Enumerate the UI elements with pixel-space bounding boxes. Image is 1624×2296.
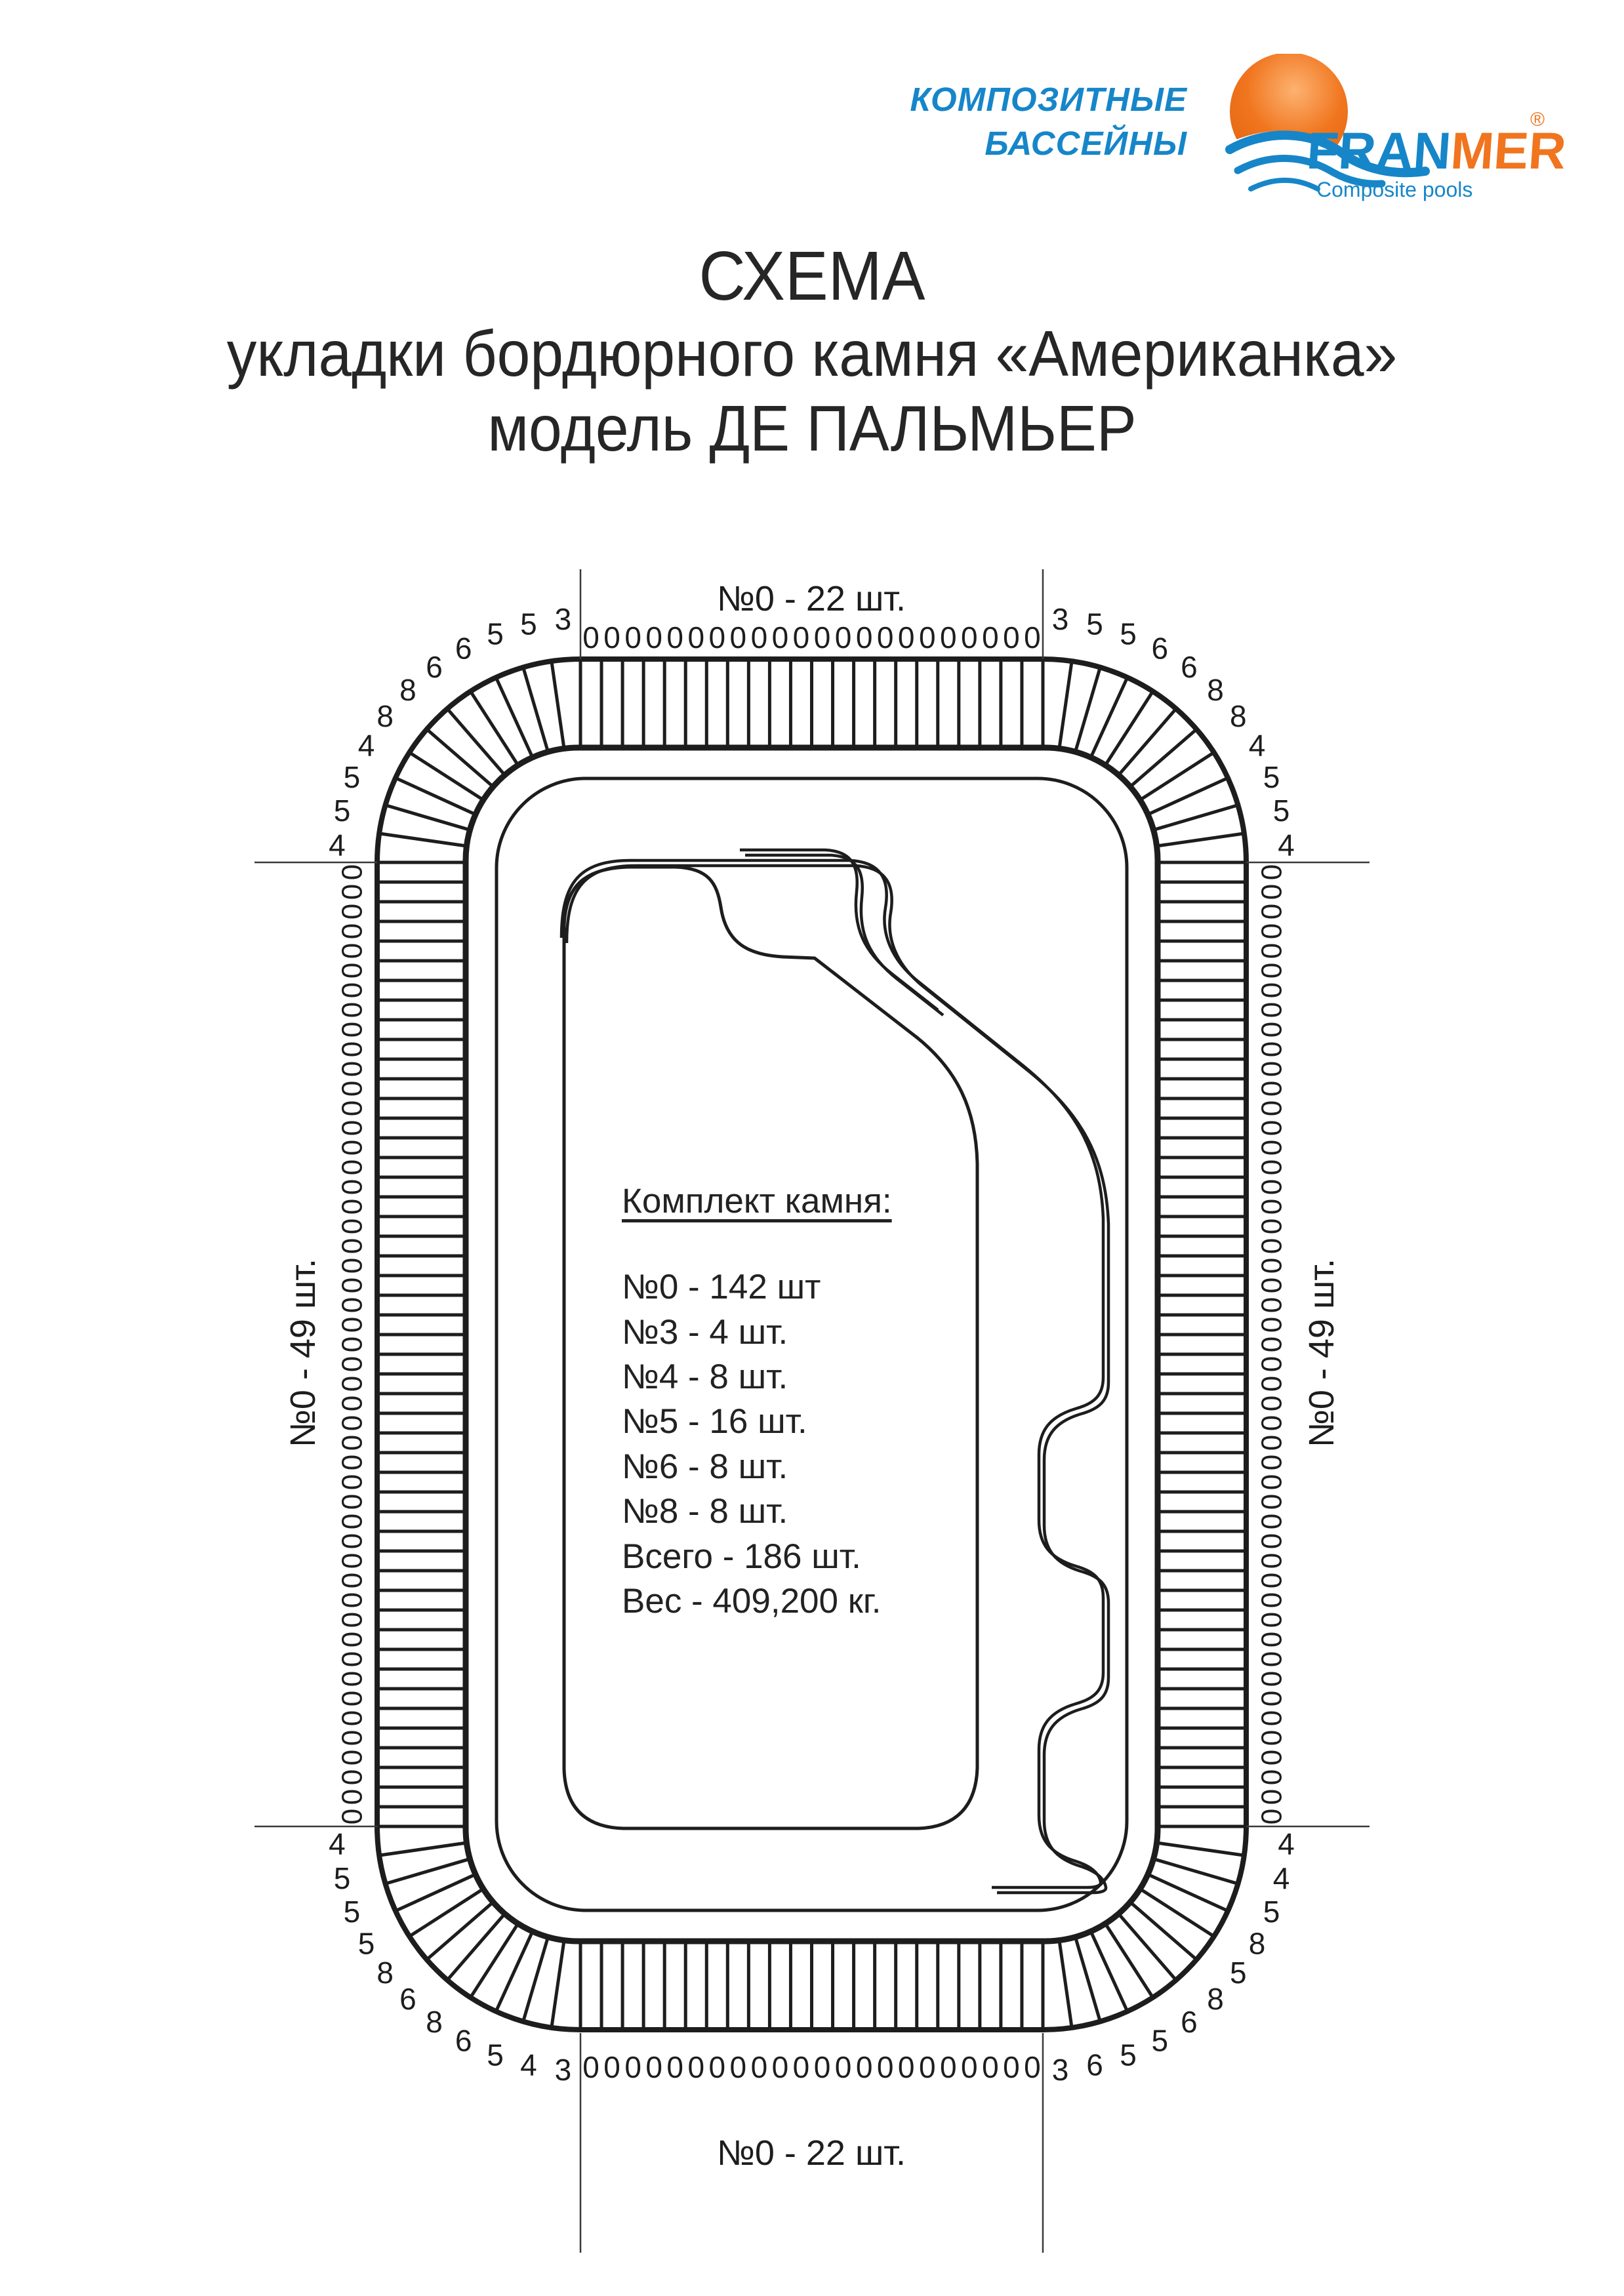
svg-text:0: 0 — [1256, 1002, 1288, 1018]
svg-text:0: 0 — [1256, 1238, 1288, 1254]
svg-text:0: 0 — [336, 1710, 369, 1726]
svg-text:0: 0 — [336, 1553, 369, 1569]
svg-text:8: 8 — [1207, 1982, 1224, 2016]
svg-text:0: 0 — [624, 2050, 641, 2084]
svg-text:8: 8 — [376, 699, 394, 733]
legend-item: №8 - 8 шт. — [622, 1492, 892, 1531]
svg-text:0: 0 — [1256, 1218, 1288, 1234]
svg-text:0: 0 — [1256, 884, 1288, 900]
svg-text:0: 0 — [336, 1218, 369, 1234]
svg-text:0: 0 — [336, 1769, 369, 1785]
svg-text:5: 5 — [1273, 794, 1290, 828]
svg-text:0: 0 — [336, 1730, 369, 1746]
svg-text:0: 0 — [1003, 620, 1020, 655]
svg-text:0: 0 — [336, 1376, 369, 1392]
pool-layout-diagram: 0000000000000000000000000000000000000000… — [0, 0, 1624, 2296]
svg-text:0: 0 — [336, 1159, 369, 1175]
svg-text:0: 0 — [1256, 1455, 1288, 1470]
svg-text:0: 0 — [336, 1592, 369, 1608]
svg-text:0: 0 — [1256, 1140, 1288, 1156]
svg-text:0: 0 — [730, 2050, 747, 2084]
legend-item: №4 - 8 шт. — [622, 1358, 892, 1396]
svg-text:0: 0 — [336, 1061, 369, 1077]
svg-text:0: 0 — [1256, 1061, 1288, 1077]
svg-text:0: 0 — [645, 620, 662, 655]
svg-text:0: 0 — [336, 1632, 369, 1647]
svg-text:0: 0 — [772, 2050, 789, 2084]
svg-text:0: 0 — [1256, 1179, 1288, 1195]
svg-text:0: 0 — [1256, 1376, 1288, 1392]
svg-text:0: 0 — [666, 620, 683, 655]
svg-text:0: 0 — [898, 620, 915, 655]
svg-text:0: 0 — [687, 2050, 704, 2084]
svg-text:0: 0 — [336, 1494, 369, 1510]
svg-text:5: 5 — [1230, 1956, 1247, 1990]
svg-text:0: 0 — [1256, 943, 1288, 959]
svg-text:5: 5 — [520, 607, 537, 641]
svg-text:0: 0 — [336, 1258, 369, 1274]
svg-text:0: 0 — [336, 1514, 369, 1529]
svg-text:0: 0 — [1256, 1730, 1288, 1746]
right-count-label: №0 - 49 шт. — [1301, 1209, 1342, 1497]
svg-text:0: 0 — [1256, 1337, 1288, 1352]
svg-text:0: 0 — [687, 620, 704, 655]
svg-text:0: 0 — [603, 2050, 620, 2084]
svg-text:0: 0 — [1256, 1100, 1288, 1116]
svg-text:3: 3 — [1052, 602, 1069, 636]
svg-text:0: 0 — [1256, 1317, 1288, 1333]
svg-text:0: 0 — [336, 963, 369, 978]
svg-text:8: 8 — [1207, 673, 1224, 707]
legend-item: №3 - 4 шт. — [622, 1313, 892, 1352]
svg-text:0: 0 — [708, 2050, 725, 2084]
svg-text:0: 0 — [961, 2050, 978, 2084]
svg-text:0: 0 — [1003, 2050, 1020, 2084]
svg-text:0: 0 — [336, 1041, 369, 1057]
svg-text:0: 0 — [336, 1455, 369, 1470]
svg-text:5: 5 — [344, 1895, 361, 1929]
svg-text:0: 0 — [1256, 1553, 1288, 1569]
top-count-label: №0 - 22 шт. — [647, 578, 975, 619]
svg-text:0: 0 — [666, 2050, 683, 2084]
svg-text:0: 0 — [582, 620, 599, 655]
svg-text:0: 0 — [336, 1691, 369, 1706]
svg-text:0: 0 — [1256, 963, 1288, 978]
svg-text:0: 0 — [1256, 1710, 1288, 1726]
svg-text:0: 0 — [1256, 904, 1288, 919]
svg-text:0: 0 — [336, 1809, 369, 1824]
svg-text:4: 4 — [1278, 1827, 1295, 1861]
svg-text:0: 0 — [835, 2050, 852, 2084]
svg-text:0: 0 — [603, 620, 620, 655]
svg-text:0: 0 — [582, 2050, 599, 2084]
legend-item: №6 - 8 шт. — [622, 1447, 892, 1486]
svg-text:0: 0 — [336, 1081, 369, 1097]
left-count-label: №0 - 49 шт. — [283, 1209, 323, 1497]
svg-text:5: 5 — [1086, 607, 1103, 641]
svg-text:6: 6 — [455, 632, 472, 666]
svg-text:0: 0 — [1256, 1671, 1288, 1687]
svg-text:0: 0 — [1256, 982, 1288, 998]
svg-text:0: 0 — [336, 1337, 369, 1352]
svg-text:5: 5 — [1151, 2023, 1168, 2057]
svg-text:0: 0 — [856, 620, 873, 655]
svg-text:0: 0 — [1256, 1769, 1288, 1785]
svg-text:0: 0 — [793, 620, 810, 655]
svg-text:0: 0 — [336, 982, 369, 998]
svg-text:0: 0 — [814, 620, 831, 655]
svg-text:0: 0 — [877, 2050, 894, 2084]
svg-text:0: 0 — [336, 1238, 369, 1254]
svg-text:0: 0 — [1256, 1691, 1288, 1706]
svg-text:0: 0 — [1256, 864, 1288, 880]
svg-text:0: 0 — [1256, 1435, 1288, 1451]
pool-step-tongue — [740, 850, 943, 1015]
svg-text:5: 5 — [334, 794, 351, 828]
svg-text:0: 0 — [1256, 1297, 1288, 1313]
svg-text:8: 8 — [399, 673, 416, 707]
svg-text:0: 0 — [336, 1356, 369, 1372]
svg-text:3: 3 — [555, 2053, 572, 2087]
svg-text:5: 5 — [334, 1861, 351, 1895]
svg-text:0: 0 — [336, 1651, 369, 1667]
svg-text:0: 0 — [982, 2050, 999, 2084]
svg-text:0: 0 — [1024, 620, 1041, 655]
svg-text:0: 0 — [1256, 1789, 1288, 1805]
svg-text:0: 0 — [336, 1022, 369, 1037]
svg-text:0: 0 — [1256, 1494, 1288, 1510]
svg-text:0: 0 — [1256, 1120, 1288, 1136]
svg-text:0: 0 — [336, 904, 369, 919]
svg-text:0: 0 — [751, 2050, 768, 2084]
svg-text:8: 8 — [1249, 1926, 1266, 1960]
svg-text:0: 0 — [940, 620, 957, 655]
svg-text:0: 0 — [336, 884, 369, 900]
svg-text:0: 0 — [336, 1533, 369, 1549]
svg-text:5: 5 — [487, 616, 504, 651]
svg-text:4: 4 — [329, 828, 346, 862]
svg-text:6: 6 — [399, 1982, 416, 2016]
schema-page: КОМПОЗИТНЫЕ БАССЕЙНЫ FRANMER ® Composite… — [0, 0, 1624, 2296]
svg-text:0: 0 — [1256, 923, 1288, 939]
svg-text:0: 0 — [814, 2050, 831, 2084]
svg-text:0: 0 — [336, 1573, 369, 1588]
svg-text:0: 0 — [1256, 1632, 1288, 1647]
svg-text:0: 0 — [336, 1120, 369, 1136]
svg-text:6: 6 — [1086, 2047, 1103, 2082]
svg-text:0: 0 — [336, 1140, 369, 1156]
svg-text:4: 4 — [329, 1827, 346, 1861]
svg-text:5: 5 — [1263, 760, 1280, 794]
svg-text:0: 0 — [336, 1435, 369, 1451]
svg-text:0: 0 — [1256, 1159, 1288, 1175]
svg-text:6: 6 — [1181, 2005, 1198, 2039]
svg-text:0: 0 — [1256, 1474, 1288, 1490]
svg-text:8: 8 — [426, 2005, 443, 2039]
legend-heading: Комплект камня: — [622, 1182, 892, 1220]
svg-text:8: 8 — [1230, 699, 1247, 733]
svg-text:5: 5 — [1263, 1895, 1280, 1929]
svg-text:0: 0 — [336, 1100, 369, 1116]
svg-text:0: 0 — [919, 2050, 936, 2084]
svg-text:0: 0 — [336, 1297, 369, 1313]
svg-text:0: 0 — [1256, 1081, 1288, 1097]
svg-text:5: 5 — [358, 1926, 375, 1960]
svg-text:0: 0 — [336, 923, 369, 939]
svg-text:0: 0 — [1256, 1041, 1288, 1057]
svg-text:0: 0 — [919, 620, 936, 655]
legend-item: №0 - 142 шт — [622, 1268, 892, 1306]
svg-text:0: 0 — [877, 620, 894, 655]
svg-text:0: 0 — [1256, 1573, 1288, 1588]
svg-text:6: 6 — [1151, 632, 1168, 666]
svg-text:0: 0 — [1256, 1612, 1288, 1628]
legend-item: Всего - 186 шт. — [622, 1537, 892, 1576]
svg-text:0: 0 — [793, 2050, 810, 2084]
svg-text:0: 0 — [336, 1671, 369, 1687]
svg-text:0: 0 — [645, 2050, 662, 2084]
svg-text:0: 0 — [1256, 1651, 1288, 1667]
svg-text:0: 0 — [336, 1750, 369, 1765]
svg-text:0: 0 — [835, 620, 852, 655]
svg-text:0: 0 — [336, 1317, 369, 1333]
svg-text:5: 5 — [487, 2038, 504, 2072]
svg-text:5: 5 — [1120, 2038, 1137, 2072]
svg-text:6: 6 — [455, 2023, 472, 2057]
svg-text:0: 0 — [336, 1199, 369, 1215]
svg-text:4: 4 — [358, 729, 375, 763]
svg-text:6: 6 — [1181, 650, 1198, 684]
svg-text:5: 5 — [344, 760, 361, 794]
bottom-count-label: №0 - 22 шт. — [647, 2133, 975, 2173]
svg-text:6: 6 — [426, 650, 443, 684]
svg-text:8: 8 — [376, 1956, 394, 1990]
svg-text:0: 0 — [1024, 2050, 1041, 2084]
svg-text:0: 0 — [624, 620, 641, 655]
svg-text:0: 0 — [336, 1789, 369, 1805]
svg-text:0: 0 — [1256, 1415, 1288, 1431]
svg-text:0: 0 — [336, 1179, 369, 1195]
svg-text:0: 0 — [1256, 1356, 1288, 1372]
svg-text:0: 0 — [1256, 1514, 1288, 1529]
svg-text:0: 0 — [1256, 1396, 1288, 1411]
svg-text:0: 0 — [982, 620, 999, 655]
svg-text:0: 0 — [961, 620, 978, 655]
svg-text:0: 0 — [336, 1612, 369, 1628]
legend-item: №5 - 16 шт. — [622, 1402, 892, 1441]
svg-text:0: 0 — [940, 2050, 957, 2084]
svg-text:0: 0 — [730, 620, 747, 655]
svg-text:0: 0 — [336, 1415, 369, 1431]
svg-text:0: 0 — [856, 2050, 873, 2084]
svg-text:3: 3 — [555, 602, 572, 636]
svg-text:0: 0 — [1256, 1592, 1288, 1608]
svg-text:4: 4 — [520, 2047, 537, 2082]
svg-text:0: 0 — [1256, 1533, 1288, 1549]
svg-text:0: 0 — [1256, 1809, 1288, 1824]
svg-text:0: 0 — [336, 943, 369, 959]
legend-item: Вес - 409,200 кг. — [622, 1582, 892, 1621]
svg-text:4: 4 — [1278, 828, 1295, 862]
legend: Комплект камня: №0 - 142 шт №3 - 4 шт. №… — [622, 1182, 892, 1621]
svg-text:0: 0 — [1256, 1750, 1288, 1765]
svg-text:0: 0 — [1256, 1022, 1288, 1037]
svg-text:5: 5 — [1120, 616, 1137, 651]
svg-text:0: 0 — [336, 1002, 369, 1018]
svg-text:0: 0 — [898, 2050, 915, 2084]
svg-text:0: 0 — [1256, 1258, 1288, 1274]
svg-text:0: 0 — [708, 620, 725, 655]
svg-text:0: 0 — [772, 620, 789, 655]
svg-text:0: 0 — [336, 1474, 369, 1490]
svg-text:0: 0 — [1256, 1278, 1288, 1293]
svg-text:3: 3 — [1052, 2053, 1069, 2087]
svg-text:0: 0 — [1256, 1199, 1288, 1215]
svg-text:0: 0 — [336, 1278, 369, 1293]
svg-text:4: 4 — [1273, 1861, 1290, 1895]
svg-text:0: 0 — [336, 1396, 369, 1411]
svg-text:0: 0 — [336, 864, 369, 880]
svg-text:4: 4 — [1249, 729, 1266, 763]
svg-text:0: 0 — [751, 620, 768, 655]
